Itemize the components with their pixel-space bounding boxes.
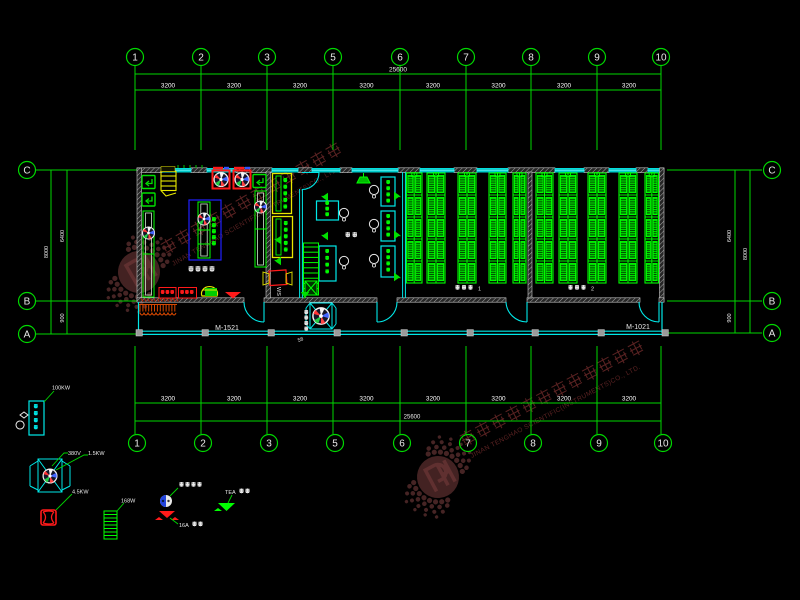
svg-text:3200: 3200 bbox=[426, 83, 441, 90]
svg-text:10: 10 bbox=[657, 439, 669, 450]
svg-text:3200: 3200 bbox=[227, 83, 242, 90]
svg-text:3200: 3200 bbox=[227, 396, 242, 403]
svg-text:C: C bbox=[23, 166, 30, 177]
svg-text:WS: WS bbox=[275, 287, 281, 296]
svg-text:9: 9 bbox=[596, 439, 602, 450]
svg-text:16A: 16A bbox=[179, 523, 189, 529]
svg-text:3: 3 bbox=[266, 439, 272, 450]
svg-text:10: 10 bbox=[655, 53, 667, 64]
svg-text:1: 1 bbox=[134, 439, 140, 450]
svg-text:25600: 25600 bbox=[404, 415, 421, 421]
svg-text:25600: 25600 bbox=[389, 67, 407, 74]
svg-text:A: A bbox=[24, 330, 31, 341]
svg-text:3200: 3200 bbox=[161, 396, 176, 403]
svg-text:3200: 3200 bbox=[359, 396, 374, 403]
svg-text:6: 6 bbox=[397, 53, 403, 64]
svg-text:900: 900 bbox=[60, 313, 66, 322]
svg-text:3200: 3200 bbox=[557, 83, 572, 90]
svg-text:5: 5 bbox=[332, 439, 338, 450]
svg-text:TEA: TEA bbox=[225, 490, 236, 496]
svg-text:A: A bbox=[769, 329, 776, 340]
svg-text:1.5KW: 1.5KW bbox=[88, 451, 105, 457]
svg-text:3200: 3200 bbox=[557, 396, 572, 403]
svg-text:9: 9 bbox=[594, 53, 600, 64]
svg-text:1: 1 bbox=[478, 287, 481, 293]
svg-text:168W: 168W bbox=[121, 499, 136, 505]
svg-text:380V: 380V bbox=[68, 451, 81, 457]
svg-text:2: 2 bbox=[198, 53, 204, 64]
svg-text:8000: 8000 bbox=[44, 246, 50, 258]
svg-text:900: 900 bbox=[727, 313, 733, 322]
svg-text:100KW: 100KW bbox=[52, 386, 71, 392]
svg-text:3200: 3200 bbox=[293, 396, 308, 403]
svg-text:3200: 3200 bbox=[359, 83, 374, 90]
svg-text:C: C bbox=[768, 166, 775, 177]
svg-text:3200: 3200 bbox=[491, 83, 506, 90]
svg-text:3200: 3200 bbox=[491, 396, 506, 403]
svg-text:6: 6 bbox=[399, 439, 405, 450]
svg-text:3200: 3200 bbox=[622, 396, 637, 403]
svg-text:7: 7 bbox=[465, 439, 471, 450]
svg-text:B: B bbox=[769, 297, 776, 308]
svg-text:3200: 3200 bbox=[161, 83, 176, 90]
svg-text:M-1021: M-1021 bbox=[626, 324, 650, 331]
svg-text:6400: 6400 bbox=[727, 230, 733, 242]
svg-text:M-1521: M-1521 bbox=[215, 325, 239, 332]
svg-text:1: 1 bbox=[132, 53, 138, 64]
svg-text:5: 5 bbox=[330, 53, 336, 64]
svg-text:3200: 3200 bbox=[293, 83, 308, 90]
svg-text:2: 2 bbox=[591, 287, 594, 293]
svg-text:2: 2 bbox=[200, 439, 206, 450]
svg-text:4.5KW: 4.5KW bbox=[72, 490, 89, 496]
svg-text:8: 8 bbox=[528, 53, 534, 64]
svg-text:3200: 3200 bbox=[426, 396, 441, 403]
svg-text:3: 3 bbox=[264, 53, 270, 64]
svg-text:8: 8 bbox=[530, 439, 536, 450]
svg-text:7: 7 bbox=[463, 53, 469, 64]
svg-text:B: B bbox=[24, 297, 31, 308]
svg-text:6400: 6400 bbox=[60, 230, 66, 242]
svg-text:3200: 3200 bbox=[622, 83, 637, 90]
svg-text:8000: 8000 bbox=[743, 248, 749, 260]
